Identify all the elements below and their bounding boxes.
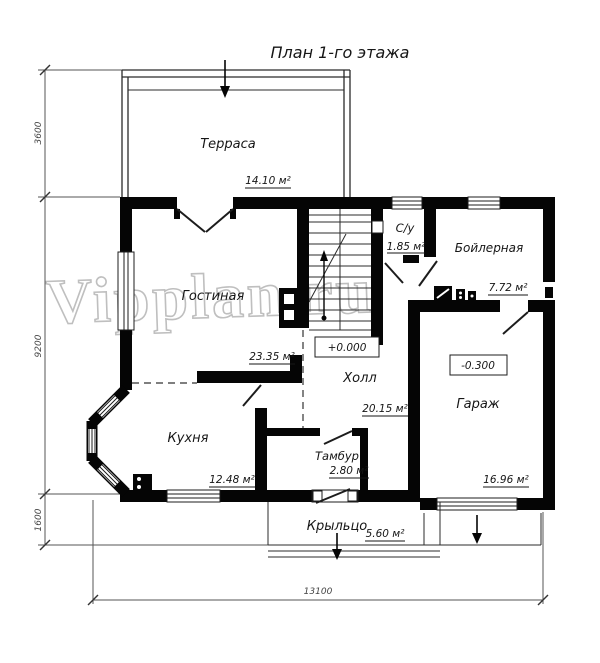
room-label-living: Гостиная: [182, 289, 245, 304]
boiler-equipment: [434, 286, 476, 301]
room-label-kitchen: Кухня: [168, 431, 209, 446]
room-area-garage: 16.96 м²: [483, 474, 529, 486]
fireplace: [279, 288, 309, 328]
terrace-door-leaf-right: [206, 209, 233, 232]
kitchen-window: [167, 490, 220, 502]
room-label-garage: Гараж: [456, 397, 499, 412]
room-area-kitchen: 12.48 м²: [209, 474, 255, 486]
wc-door-stub: [403, 255, 419, 263]
floor-plan-page: Vipplan.ru План 1-го этажа 3600 9200 160…: [0, 0, 600, 663]
vestibule-right-wall: [360, 428, 368, 490]
dim-porch-depth: 1600: [34, 508, 44, 531]
porch-exit-arrow: [332, 533, 342, 560]
room-label-terrace: Терраса: [200, 137, 256, 152]
room-area-hall: 20.15 м²: [362, 403, 408, 415]
kitchen-door-leaf: [243, 385, 261, 406]
room-area-living: 23.35 м²: [249, 351, 295, 363]
room-label-hall: Холл: [342, 371, 376, 386]
dim-house-depth: 9200: [34, 334, 44, 357]
garage-gate: [437, 498, 517, 510]
room-area-vestibule: 2.80 м²: [330, 465, 370, 477]
garage-driveway: [424, 513, 541, 545]
stairs: [309, 209, 371, 330]
room-area-wc: 1.85 м²: [387, 241, 427, 253]
dimension-lines: 3600 9200 1600 13100: [34, 65, 548, 605]
hall-garage-wall: [408, 300, 420, 502]
entrance-door: [312, 489, 358, 503]
terrace-outline: [122, 60, 350, 197]
boiler-window: [468, 197, 500, 209]
dim-terrace-depth: 3600: [34, 121, 44, 144]
room-label-boiler: Бойлерная: [455, 241, 523, 255]
room-label-wc: С/у: [396, 221, 415, 235]
wc-toilet: [372, 213, 383, 241]
room-area-porch: 5.60 м²: [366, 528, 406, 540]
room-area-terrace: 14.10 м²: [245, 175, 291, 187]
vestibule-door-leaf: [324, 431, 352, 444]
boiler-garage-wall: [408, 300, 500, 312]
dim-total-width: 13100: [304, 587, 333, 597]
garage-elevation: -0.300: [461, 360, 495, 372]
hall-elevation: +0.000: [328, 342, 367, 354]
room-label-vestibule: Тамбур: [315, 449, 359, 463]
kitchen-corner-unit: [133, 474, 152, 492]
boiler-garage-door-leaf: [503, 312, 528, 334]
vestibule-top-wall: [255, 428, 320, 436]
room-area-boiler: 7.72 м²: [489, 282, 529, 294]
page-title: План 1-го этажа: [271, 43, 410, 62]
boiler-door-leaf: [419, 261, 437, 286]
garage-exit-arrow: [472, 515, 482, 544]
wc-boiler-wall: [424, 209, 436, 257]
bay-window: [89, 389, 126, 493]
terrace-entry-arrow: [220, 60, 230, 98]
wc-door-leaf: [385, 263, 403, 283]
living-kitchen-wall: [197, 371, 302, 383]
kitchen-hall-wall: [255, 408, 267, 490]
wc-window: [392, 197, 422, 209]
stair-left-wall: [297, 209, 309, 288]
floor-plan-drawing: План 1-го этажа 3600 9200 1600 13100: [0, 0, 600, 663]
room-label-porch: Крыльцо: [307, 519, 368, 534]
terrace-door-leaf-left: [177, 209, 205, 232]
living-room-window: [118, 252, 134, 330]
